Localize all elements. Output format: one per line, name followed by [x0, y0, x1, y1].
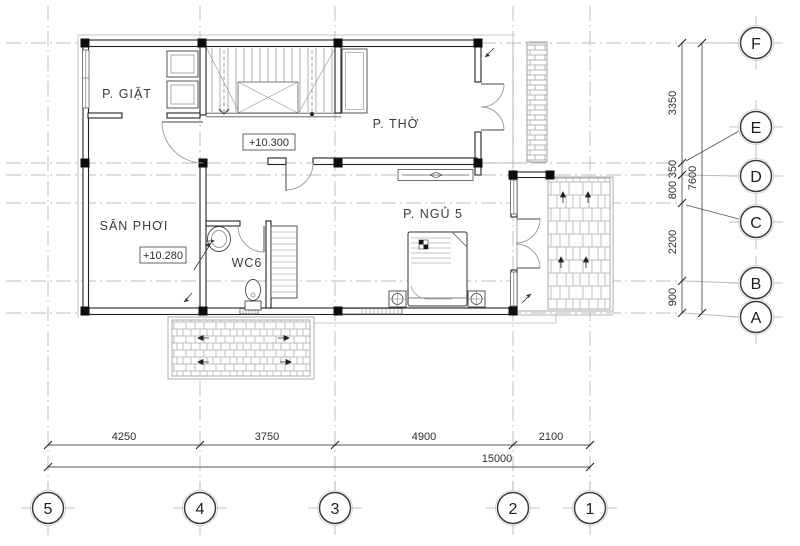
wardrobe — [271, 226, 297, 298]
level-tag-yard: +10.280 — [143, 250, 183, 262]
terrace-paving — [517, 177, 613, 315]
leader-grid-e — [686, 131, 739, 161]
facade-stone-band — [481, 42, 547, 163]
bedroom-east-window-lower — [511, 272, 518, 306]
floor-plan-page: 3350 350 800 2200 900 7600 4250 3750 490… — [0, 0, 800, 546]
grid-bubble-a: A — [751, 310, 762, 327]
grid-bubble-1: 1 — [586, 501, 595, 518]
bedroom-door — [286, 163, 313, 191]
level-tag-hall: +10.300 — [249, 137, 289, 149]
bedroom-north-window-band — [398, 170, 473, 181]
wc-toilet — [245, 280, 261, 311]
grid-bubble-3: 3 — [331, 501, 340, 518]
nightstand-left — [389, 291, 406, 307]
dim-bottom-total: 15000 — [482, 453, 513, 465]
stair-landing-edge — [206, 113, 341, 117]
grid-bubble-d: D — [750, 169, 762, 186]
nightstand-right — [468, 291, 485, 307]
grid-bubbles-right: F E D C B A — [729, 16, 783, 344]
grid-bubble-2: 2 — [509, 501, 518, 518]
dim-right-350: 350 — [667, 160, 679, 178]
dim-bottom-3750: 3750 — [255, 431, 279, 443]
grid-bubble-e: E — [751, 120, 762, 137]
dim-right-3350: 3350 — [667, 91, 679, 115]
washing-machines — [167, 51, 198, 108]
dim-bottom-4250: 4250 — [112, 431, 136, 443]
room-label-bedroom5: P. NGỦ 5 — [403, 206, 463, 221]
dim-right-2200: 2200 — [667, 230, 679, 254]
dim-bottom-2100: 2100 — [539, 431, 563, 443]
dimensions-bottom: 4250 3750 4900 2100 15000 — [44, 431, 594, 471]
laundry-window — [83, 50, 90, 108]
bedroom-south-window — [342, 309, 402, 315]
dimensions-right: 3350 350 800 2200 900 7600 — [667, 39, 739, 317]
bedroom-east-window-upper — [511, 180, 518, 214]
stair-hall-door — [162, 122, 203, 163]
grid-bubble-c: C — [750, 215, 762, 232]
grid-bubbles-bottom: 5 4 3 2 1 — [21, 481, 617, 535]
room-label-wc: WC6 — [232, 256, 263, 270]
staircase — [206, 47, 341, 117]
walls — [83, 40, 553, 315]
stair-start-dot — [310, 112, 314, 116]
wc-sink — [206, 227, 231, 252]
porch-paving — [168, 317, 314, 379]
worship-double-door — [481, 84, 504, 130]
dim-right-800: 800 — [667, 181, 679, 199]
altar-cabinet — [342, 49, 367, 113]
dim-right-900: 900 — [667, 288, 679, 306]
grid-bubble-b: B — [751, 276, 762, 293]
grid-bubble-4: 4 — [196, 501, 205, 518]
furniture — [167, 48, 531, 310]
leader-grid-c — [686, 205, 739, 219]
eave-lines — [78, 35, 556, 323]
floor-plan-svg: 3350 350 800 2200 900 7600 4250 3750 490… — [0, 0, 800, 546]
grid-bubble-f: F — [751, 36, 761, 53]
room-label-laundry: P. GIẶT — [102, 86, 152, 101]
dim-bottom-4900: 4900 — [412, 431, 436, 443]
bed — [408, 232, 467, 306]
room-label-worship: P. THỜ — [373, 116, 420, 131]
dim-right-total: 7600 — [687, 166, 699, 190]
room-label-drying-yard: SÂN PHƠI — [100, 218, 169, 233]
wc-door — [238, 226, 264, 252]
grid-bubble-5: 5 — [44, 501, 53, 518]
